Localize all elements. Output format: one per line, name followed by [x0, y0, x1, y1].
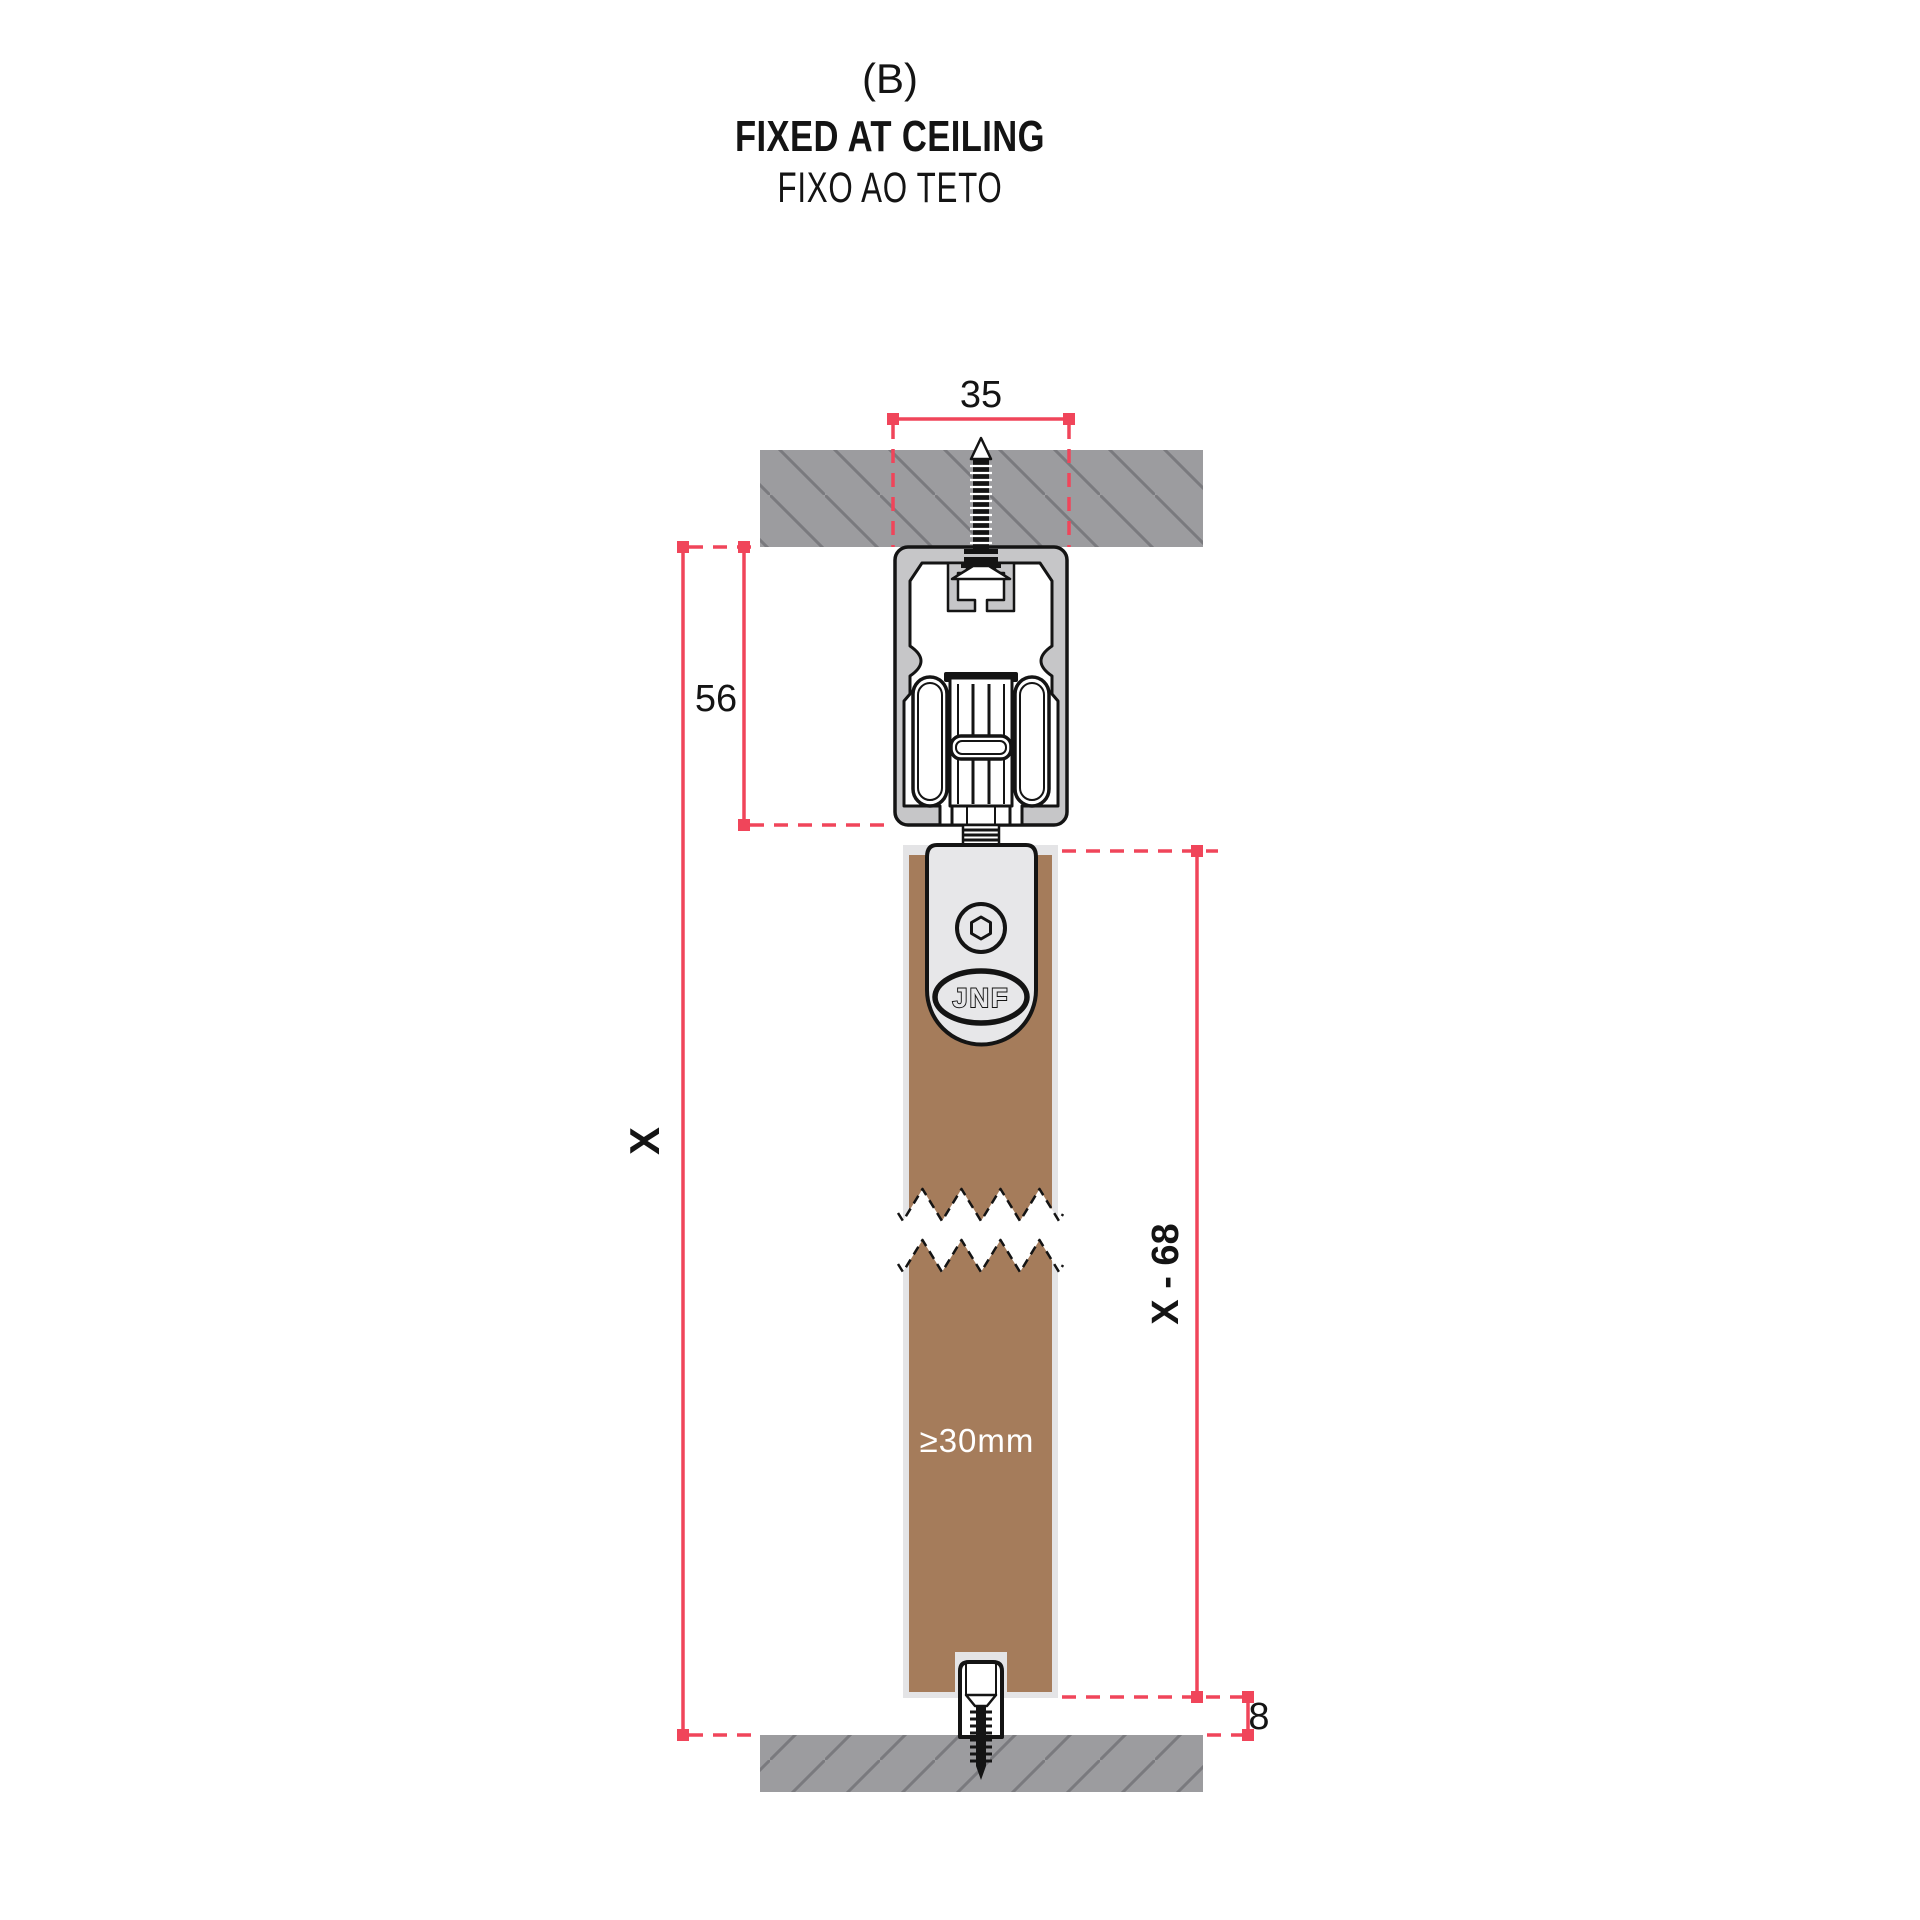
adjustment-nut — [951, 736, 1011, 759]
title-heading: FIXED AT CEILING — [735, 112, 1045, 161]
title-block: (B) FIXED AT CEILING FIXO AO TETO — [735, 55, 1045, 212]
dim-x68-label: X - 68 — [1145, 1223, 1187, 1324]
title-tag: (B) — [862, 55, 918, 102]
jnf-logo-text: JNF — [952, 983, 1009, 1013]
dim-35-label: 35 — [960, 374, 1002, 416]
dim-56-label: 56 — [695, 678, 737, 720]
dimension-x: X — [621, 541, 760, 1741]
door-thickness-label: ≥30mm — [920, 1422, 1035, 1459]
hanger-hex-nut — [952, 806, 1010, 825]
technical-drawing: (B) FIXED AT CEILING FIXO AO TETO ≥30mm — [0, 0, 1920, 1920]
drawing-sheet: (B) FIXED AT CEILING FIXO AO TETO ≥30mm — [0, 0, 1920, 1920]
dimension-x-68: X - 68 — [1062, 845, 1252, 1703]
title-subheading: FIXO AO TETO — [778, 164, 1003, 212]
ceiling-screw-tip — [971, 438, 991, 459]
dim-x-label: X — [621, 1127, 668, 1155]
dim-8-label: 8 — [1248, 1696, 1269, 1738]
dimension-56: 56 — [689, 541, 884, 831]
bracket-hex-socket — [972, 917, 991, 939]
hanger-bracket: JNF — [927, 845, 1036, 1044]
